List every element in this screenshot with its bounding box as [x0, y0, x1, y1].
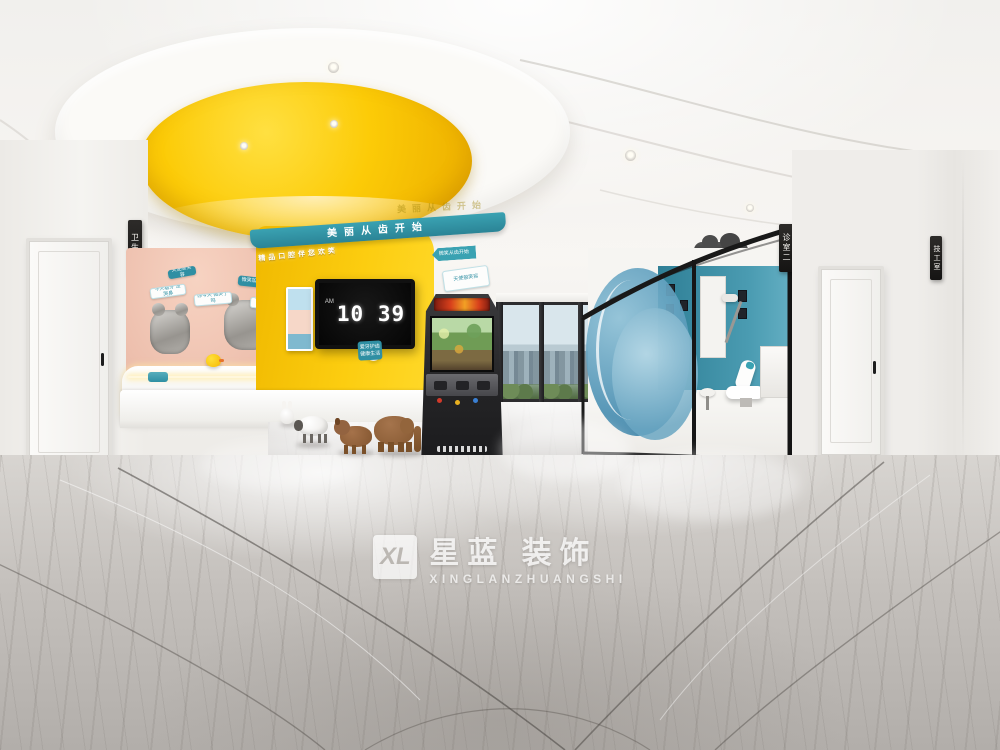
toy-duck	[206, 354, 221, 367]
baby-sticker: 天使般笑容	[442, 265, 490, 292]
tv-screen: AM 10 39	[319, 283, 411, 345]
clock-tv: AM 10 39	[315, 279, 415, 349]
toy-elephant	[374, 408, 422, 456]
watermark-brand-cn: 星蓝 装饰	[429, 528, 626, 572]
ceiling-spotlight	[625, 150, 636, 161]
tv-badge: 爱牙护齿 健康生活	[358, 340, 383, 360]
restroom-door	[26, 238, 112, 468]
clinic-panorama-scene: 卫生间 今天看牙 没哭鼻 你今天 微笑了吗 微笑加油站 今天刷牙了吗 天使般笑容…	[0, 0, 1000, 750]
clock-meridiem: AM	[325, 299, 334, 305]
toy-dog	[334, 420, 374, 454]
toy-rabbit	[279, 402, 295, 424]
doctor-stool	[700, 388, 715, 412]
dental-lamp	[722, 294, 738, 302]
clinic-cabinet	[760, 346, 790, 398]
clinic-inner-door	[700, 276, 726, 358]
wall-corner	[962, 160, 964, 460]
lab-room-sign: 技工室	[930, 236, 942, 280]
watermark-brand-en: XINGLANZHUANGSHI	[429, 572, 626, 586]
floor-reflection	[500, 420, 630, 480]
arcade-screen	[430, 316, 494, 372]
desk-sink	[148, 372, 168, 382]
watermark: XL 星蓝 装饰 XINGLANZHUANGSHI	[0, 528, 1000, 586]
toy-sheep	[294, 412, 330, 444]
bear-mirror	[150, 310, 190, 354]
dome-spotlight	[240, 142, 248, 150]
ceiling-spotlight	[328, 62, 339, 73]
floor	[0, 455, 1000, 750]
wall-poster	[286, 287, 313, 351]
arcade-machine	[421, 294, 503, 466]
ceiling-spotlight	[746, 204, 754, 212]
arcade-marquee	[434, 298, 490, 311]
arcade-vents	[437, 446, 487, 452]
dome-spotlight	[330, 120, 338, 128]
clock-time: 10 39	[337, 302, 405, 326]
floor-reflection	[620, 450, 800, 520]
arcade-control-panel	[426, 374, 498, 396]
watermark-logo: XL	[373, 535, 417, 579]
glass-graphic-stripe	[596, 280, 666, 420]
lab-door	[818, 266, 884, 458]
